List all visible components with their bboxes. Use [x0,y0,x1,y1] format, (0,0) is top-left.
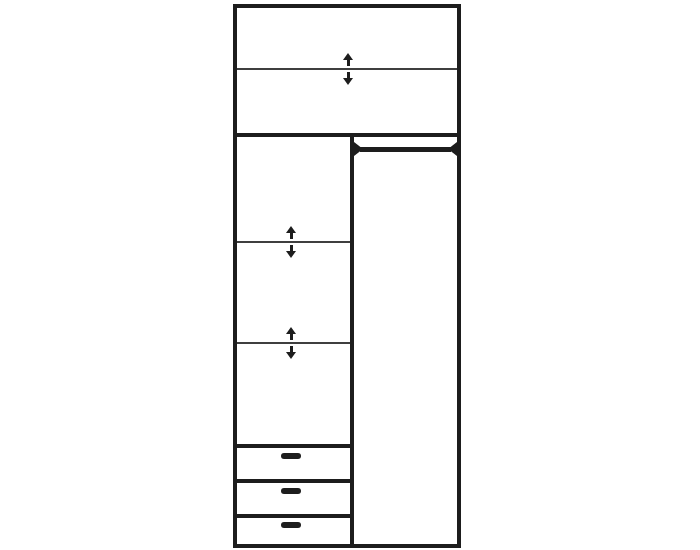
drawer-handle-icon [281,522,301,528]
drawer-handle-icon [281,453,301,459]
shelf-adjust-arrows [342,53,354,85]
arrow-up-icon [286,327,296,340]
vertical-partition [350,133,354,544]
diagram-canvas [0,0,700,550]
drawer-divider [237,479,350,483]
drawer-handle-icon [281,488,301,494]
arrow-down-icon [286,245,296,258]
rail-end-cap-right [448,142,457,156]
wardrobe-frame [233,4,461,548]
drawer-divider [237,444,350,448]
arrow-up-icon [343,53,353,66]
shelf-adjust-arrows [285,226,297,258]
arrow-down-icon [343,72,353,85]
fixed-shelf-panel [237,133,457,137]
hanging-rail-icon [354,140,457,158]
arrow-down-icon [286,346,296,359]
arrow-up-icon [286,226,296,239]
shelf-adjust-arrows [285,327,297,359]
drawer-divider [237,514,350,518]
rail-bar [360,147,451,152]
